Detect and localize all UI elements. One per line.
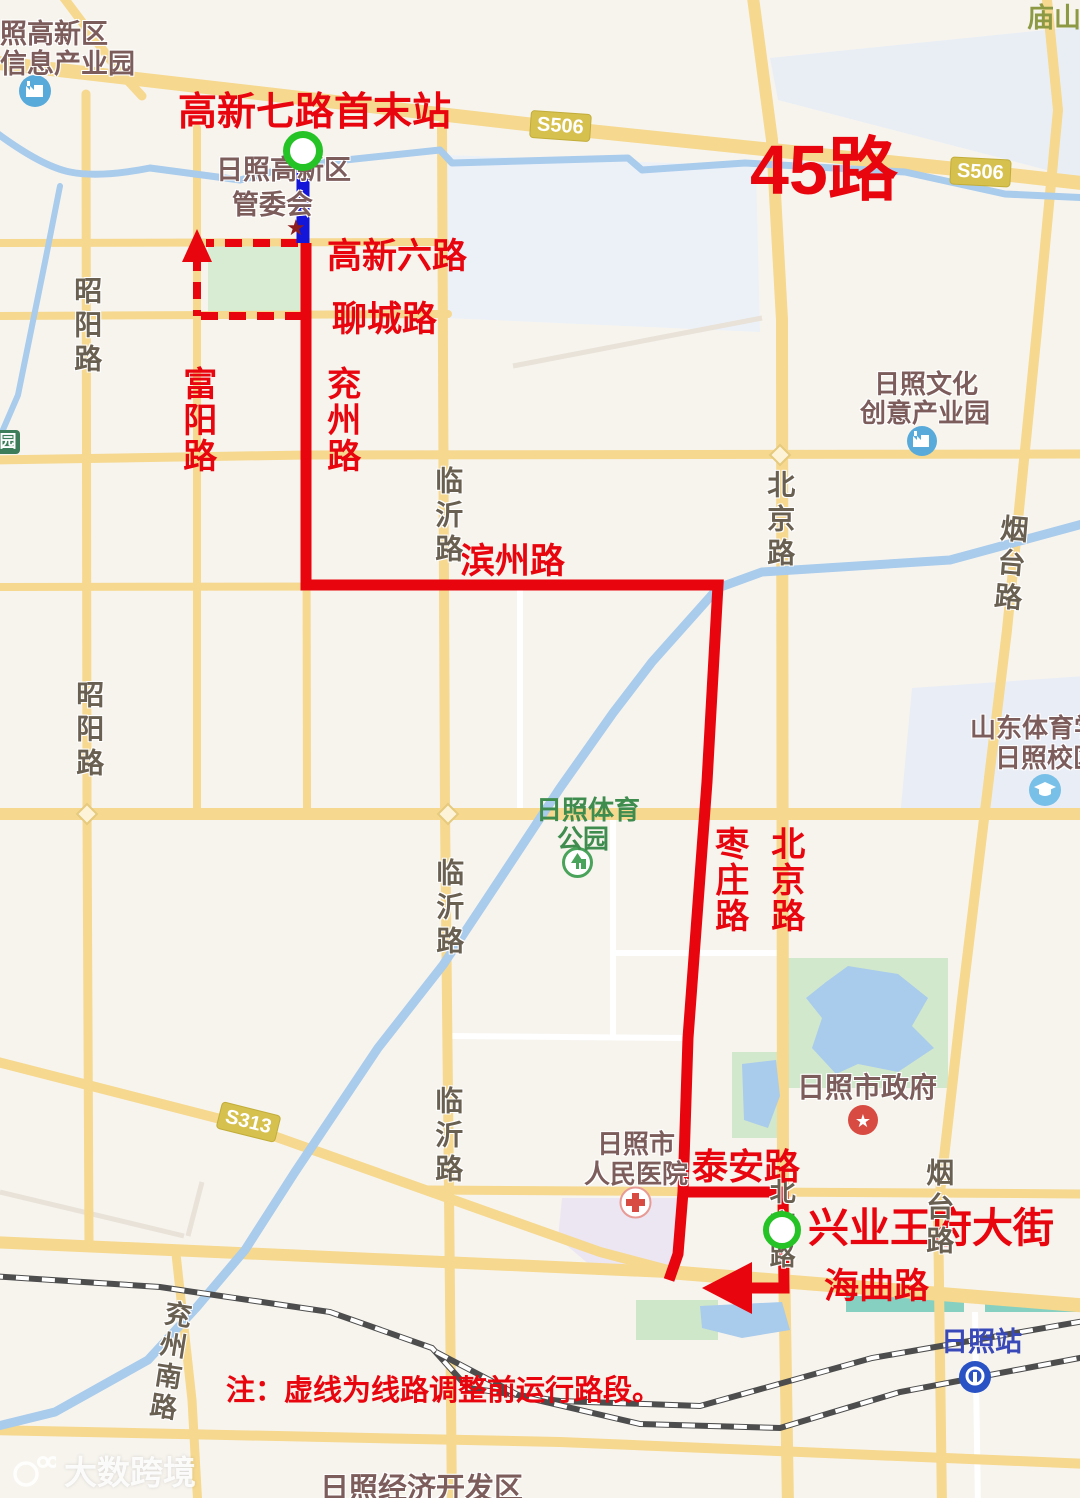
street-binzhou: 滨州路 bbox=[460, 543, 565, 581]
graduation-cap-icon bbox=[1028, 773, 1062, 812]
poi-sports-park-line1: 日照体育 bbox=[536, 796, 640, 824]
street-liaocheng: 聊城路 bbox=[332, 301, 437, 339]
poi-sports-park-line2: 公园 bbox=[557, 825, 609, 853]
street-zhaoyang-2: 昭阳路 bbox=[73, 680, 103, 782]
terminal-circle-end bbox=[763, 1211, 801, 1249]
poi-culture-line2: 创意产业园 bbox=[860, 399, 990, 427]
street-haiqu: 海曲路 bbox=[824, 1268, 929, 1306]
government-star-icon: ★ bbox=[847, 1104, 879, 1141]
poi-admin-line1: 日照高新区 bbox=[216, 156, 351, 185]
poi-industry-park-line1: 照高新区 bbox=[0, 20, 108, 49]
route-number-label: 45路 bbox=[750, 133, 898, 209]
park-green-admin bbox=[208, 246, 306, 312]
street-beijing-dark-1: 北京路 bbox=[764, 470, 794, 572]
area-tint-topmid bbox=[445, 155, 760, 332]
route-note: 注：虚线为线路调整前运行路段。 bbox=[226, 1376, 661, 1407]
railway-station-icon bbox=[958, 1360, 992, 1399]
street-zaozhuang: 枣庄路 bbox=[710, 826, 747, 934]
poi-college-line1: 山东体育学 bbox=[970, 714, 1080, 742]
factory-icon bbox=[906, 425, 938, 462]
street-gaoxinliu: 高新六路 bbox=[327, 238, 467, 276]
scenic-park-badge: 园 bbox=[0, 430, 20, 454]
street-linyi-2: 临沂路 bbox=[433, 858, 463, 960]
poi-admin-line2: 管委会 bbox=[232, 191, 313, 220]
poi-dev-zone: 日照经济开发区 bbox=[320, 1474, 523, 1498]
shield-s506-west: S506 bbox=[529, 110, 592, 142]
place-miaoshan: 庙山南 bbox=[1027, 4, 1080, 33]
street-yanzhou: 兖州路 bbox=[322, 366, 359, 474]
street-yantai-2: 烟台路 bbox=[923, 1158, 953, 1260]
street-taian: 泰安路 bbox=[692, 1148, 800, 1187]
poi-hospital-line2: 人民医院 bbox=[584, 1160, 688, 1188]
hospital-cross-icon bbox=[619, 1186, 652, 1224]
poi-station: 日照站 bbox=[941, 1328, 1022, 1357]
road-s313 bbox=[0, 1060, 668, 1270]
street-linyi-3: 临沂路 bbox=[432, 1086, 462, 1188]
road-haiqu-west bbox=[0, 1242, 668, 1272]
terminal-start-label: 高新七路首末站 bbox=[178, 92, 451, 134]
bus-route-map: 高新七路首末站 45路 高新六路 聊城路 富阳路 兖州路 滨州路 枣庄路 北京路… bbox=[0, 0, 1080, 1498]
street-beijing-red: 北京路 bbox=[766, 826, 803, 934]
route-line-main bbox=[306, 243, 718, 1280]
watermark-logo-icon bbox=[10, 1452, 56, 1488]
shield-s506-east: S506 bbox=[949, 156, 1011, 187]
street-linyi-1: 临沂路 bbox=[432, 466, 462, 568]
poi-government: 日照市政府 bbox=[797, 1073, 937, 1103]
road-zhaoyang bbox=[86, 94, 89, 1246]
street-fuyang: 富阳路 bbox=[178, 366, 215, 474]
svg-text:★: ★ bbox=[855, 1111, 871, 1131]
watermark: 大数跨境 bbox=[10, 1446, 196, 1494]
watermark-brand: 大数跨境 bbox=[64, 1446, 196, 1494]
poi-culture-line1: 日照文化 bbox=[874, 370, 978, 398]
poi-industry-park-line2: 信息产业园 bbox=[0, 50, 135, 79]
poi-college-line2: 日照校区 bbox=[995, 744, 1080, 772]
poi-hospital-line1: 日照市 bbox=[597, 1130, 675, 1158]
street-zhaoyang-1: 昭阳路 bbox=[71, 276, 101, 378]
factory-icon bbox=[18, 74, 52, 113]
terminal-circle-start bbox=[283, 131, 323, 171]
